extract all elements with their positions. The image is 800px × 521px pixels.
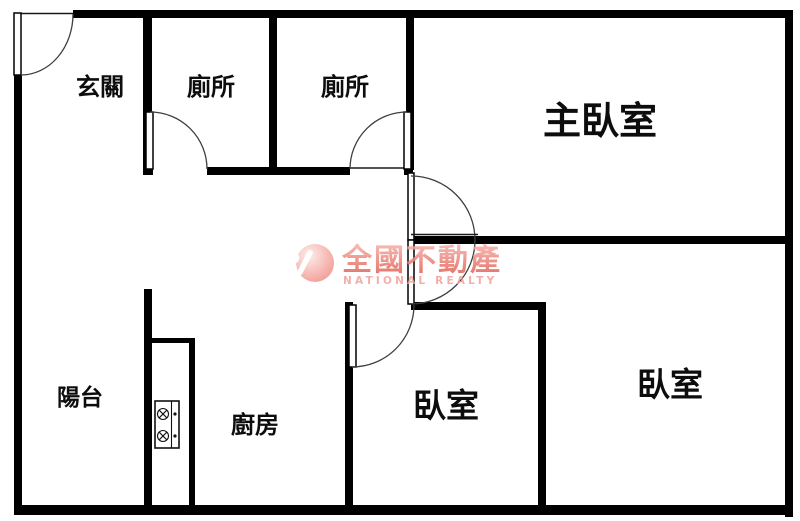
bedroom-middle-door-leaf <box>349 305 356 367</box>
watermark-logo-letter: R <box>280 249 302 278</box>
toilet-left-door-arc <box>150 112 207 169</box>
watermark: R 全國不動產 NATIONAL REALTY <box>280 243 502 287</box>
room-label-toilet-right: 廁所 <box>321 73 369 101</box>
room-label-bedroom-middle: 臥室 <box>413 386 479 425</box>
toilet-left-door-leaf <box>146 112 153 169</box>
entry-door-leaf <box>14 13 21 75</box>
wall-toilet-divider <box>269 10 277 175</box>
wall-balcony-divider <box>144 289 152 515</box>
wall-toilet-bottom-mid <box>207 167 350 175</box>
master-bedroom-door-arc <box>411 176 475 240</box>
room-label-bedroom-right: 臥室 <box>637 365 703 404</box>
room-label-master-bedroom: 主臥室 <box>543 99 657 143</box>
floor-plan-canvas: R 全國不動產 NATIONAL REALTY 玄關 廁所 廁所 主臥室 陽台 … <box>0 0 800 521</box>
wall-bedroom-middle-top <box>411 302 546 310</box>
bedroom-middle-door-arc <box>352 305 414 367</box>
kitchen-counter-right <box>189 338 195 515</box>
toilet-right-door-arc <box>350 112 407 169</box>
watermark-brand-name: 全國不動產 <box>341 243 502 278</box>
wall-bedroom-divider <box>538 302 546 515</box>
outer-wall-right <box>785 10 793 517</box>
room-label-toilet-left: 廁所 <box>187 73 235 101</box>
outer-wall-left <box>14 75 22 515</box>
toilet-right-door-leaf <box>404 112 411 169</box>
stove-icon <box>155 401 179 448</box>
entry-door-arc <box>21 14 73 75</box>
kitchen-counter-top <box>152 338 195 343</box>
outer-wall-bottom <box>14 505 793 515</box>
room-label-kitchen: 廚房 <box>231 411 279 439</box>
master-bedroom-door-leaf <box>408 173 414 240</box>
watermark-brand-name-en: NATIONAL REALTY <box>343 275 497 287</box>
room-label-balcony: 陽台 <box>57 384 103 411</box>
floor-plan: R 全國不動產 NATIONAL REALTY 玄關 廁所 廁所 主臥室 陽台 … <box>0 0 800 521</box>
room-label-entry: 玄關 <box>76 73 124 101</box>
outer-wall-top <box>73 10 793 18</box>
